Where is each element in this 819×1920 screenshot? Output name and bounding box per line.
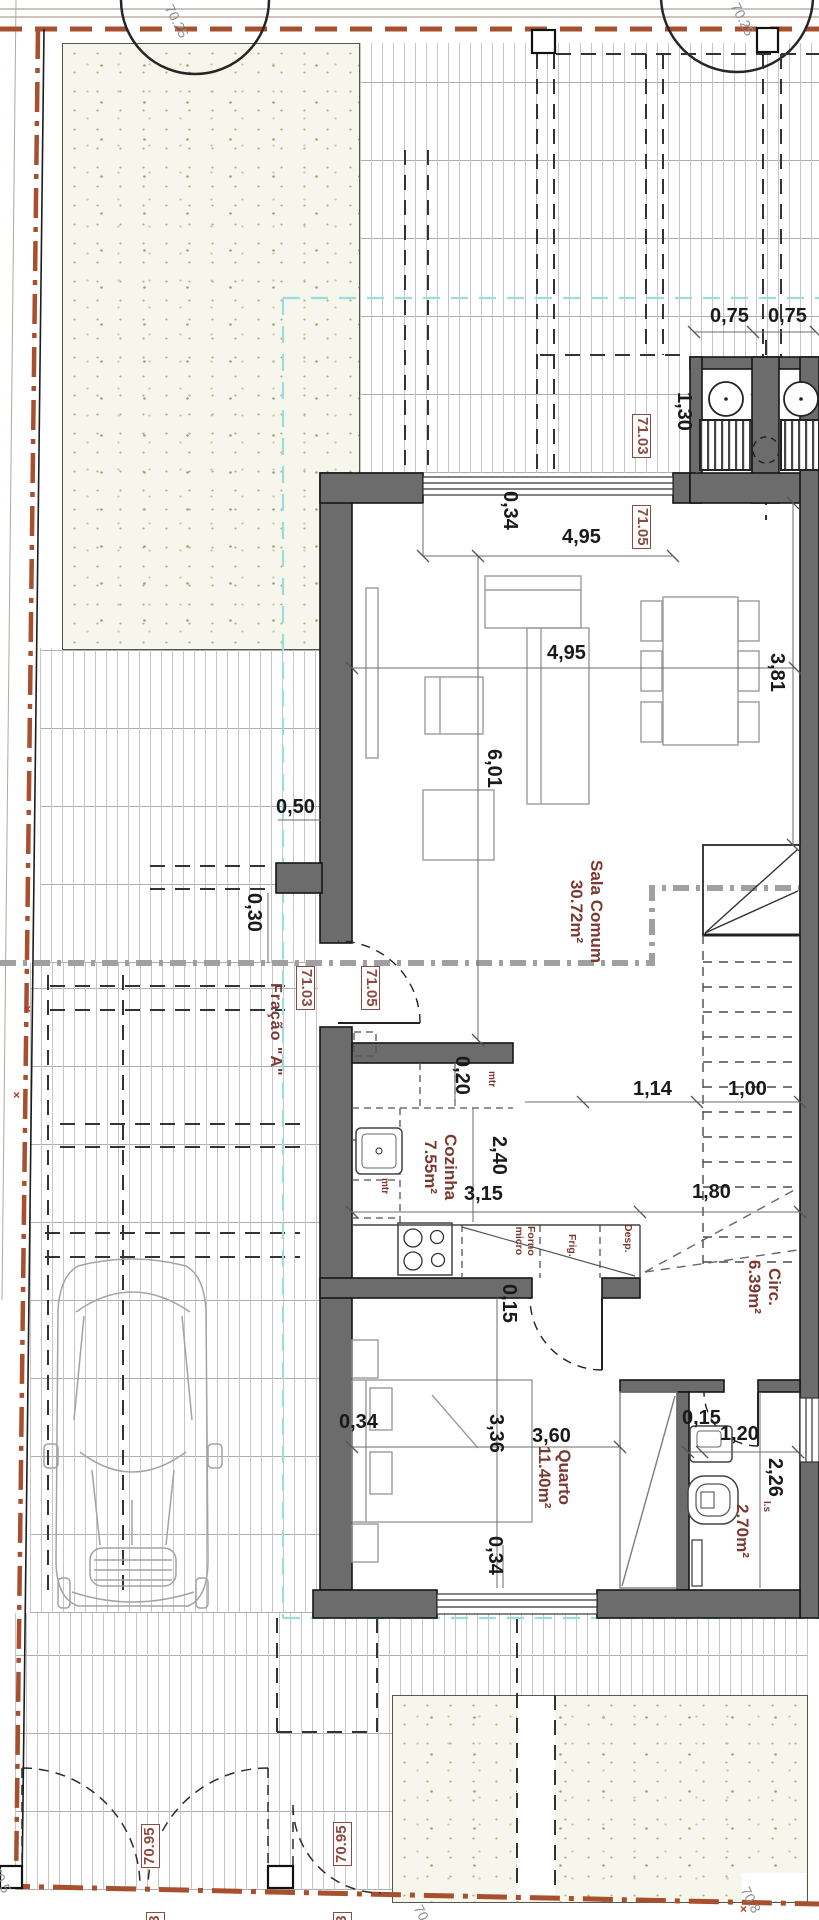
boundary-mark: × [24, 1002, 31, 1016]
dimension-label: 4,95 [562, 527, 601, 547]
room-label-bath-area: 2.70m² [732, 1504, 752, 1558]
dimension-label: 3,36 [486, 1414, 506, 1453]
dimension-label: 0,15 [499, 1284, 519, 1323]
dimension-label: 0,75 [768, 306, 807, 326]
level-label: 71.03 [146, 1912, 165, 1920]
boundary-mark: × [740, 1902, 747, 1916]
level-label: 71.05 [633, 505, 652, 549]
dimension-label: 0,34 [500, 491, 520, 530]
dimension-label: 0,50 [276, 797, 315, 817]
car-icon [44, 1259, 222, 1608]
dimension-label: 3,81 [767, 653, 787, 692]
vent-grille-icon [781, 420, 819, 470]
dimension-label: 3,15 [464, 1184, 503, 1204]
room-label-sala: Sala Comum 30.72m² [565, 860, 606, 963]
gate-post [268, 1866, 293, 1888]
level-label: 70.95 [333, 1822, 352, 1866]
dimension-label: 3,60 [532, 1426, 571, 1446]
fraction-label: Fração "A" [266, 983, 284, 1077]
appliance-label-pantry: Desp. [621, 1224, 633, 1253]
room-label-qu arto: Quarto 11.40m² [533, 1446, 574, 1508]
room-label-cozinha: Cozinha 7.55m² [419, 1134, 460, 1200]
dimension-label: 0,20 [452, 1056, 472, 1095]
dimension-label: 0,30 [244, 893, 264, 932]
dimension-label: 6,01 [484, 749, 504, 788]
dimension-label: 0,34 [339, 1412, 378, 1432]
level-label: 71.03 [633, 414, 652, 458]
boundary-mark: × [13, 1088, 20, 1102]
level-label: 71.05 [362, 966, 381, 1010]
floor-plan-canvas: 70.2570.250,750,751,3071.030,344,9571.05… [0, 0, 819, 1920]
dimension-label: 1,80 [692, 1182, 731, 1202]
room-label-is: I.s [761, 1501, 772, 1512]
level-label: 71.03 [297, 966, 316, 1010]
post [757, 28, 778, 52]
appliance-label-oven: Forno micro [513, 1226, 536, 1256]
dimension-label: 2,40 [489, 1136, 509, 1175]
dimension-label: 0,15 [682, 1408, 721, 1428]
room-label-circ: Circ. 6.39m² [743, 1260, 784, 1314]
dimension-label: 1,20 [720, 1424, 759, 1444]
vent-grille-icon [700, 420, 752, 470]
dimension-label: 1,14 [633, 1079, 672, 1099]
level-label: 71.03 [333, 1912, 352, 1920]
tree-icon [121, 0, 269, 74]
dimension-label: 4,95 [547, 643, 586, 663]
note-label: mtr [379, 1178, 390, 1194]
plan-linework [0, 0, 819, 1920]
post [532, 30, 555, 53]
appliance-label-fridge: Frig. [565, 1234, 577, 1257]
note-label: mtr [486, 1071, 497, 1087]
dimension-label: 0,75 [710, 306, 749, 326]
dimension-label: 1,30 [674, 392, 694, 431]
level-label: 70.95 [141, 1824, 160, 1868]
dimension-label: 1,00 [728, 1079, 767, 1099]
floor-fills [318, 368, 819, 1590]
dimension-label: 0,34 [485, 1536, 505, 1575]
dimension-label: 2,26 [765, 1458, 785, 1497]
